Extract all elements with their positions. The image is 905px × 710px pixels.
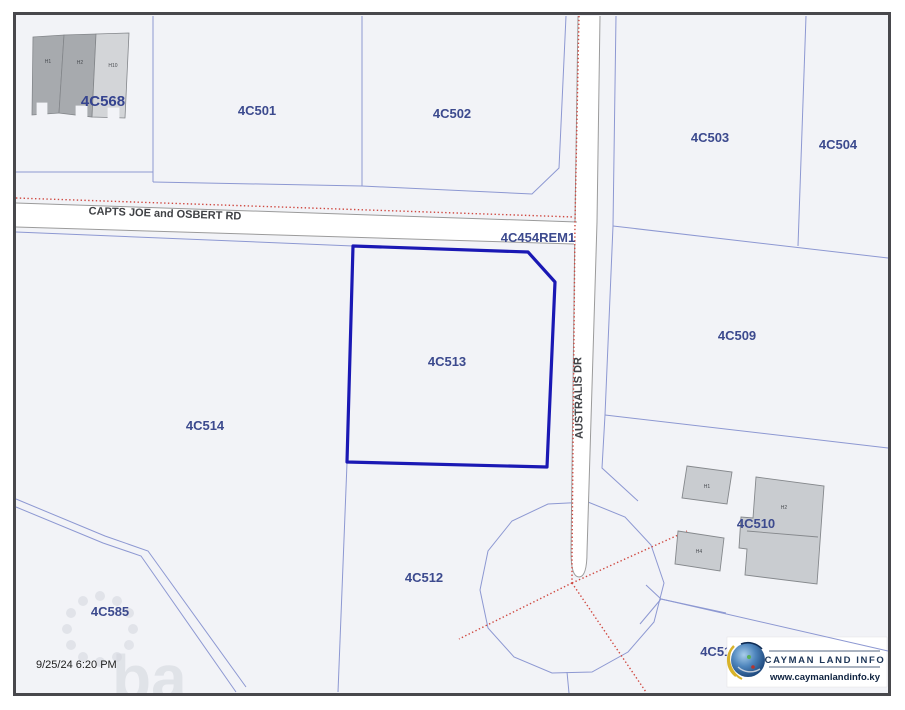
parcel-label-4c568[interactable]: 4C568	[81, 93, 125, 110]
building-label: H2	[77, 60, 84, 66]
parcel-label-4c503[interactable]: 4C503	[691, 130, 729, 145]
parcel-label-4c514[interactable]: 4C514	[186, 418, 225, 433]
parcel-label-4c513[interactable]: 4C513	[428, 354, 466, 369]
building-label: H2	[781, 505, 788, 511]
parcel-label-4c504[interactable]: 4C504	[819, 137, 858, 152]
parcel-label-4c454rem1[interactable]: 4C454REM1	[501, 230, 575, 245]
parcel-label-4c510[interactable]: 4C510	[737, 516, 775, 531]
parcel-label-4c509[interactable]: 4C509	[718, 328, 756, 343]
parcel-label-4c501[interactable]: 4C501	[238, 103, 276, 118]
map-canvas[interactable]: ba	[0, 0, 905, 710]
building-label: H1	[704, 484, 711, 490]
logo-title: CAYMAN LAND INFO	[765, 655, 886, 666]
parcel-label-4c512[interactable]: 4C512	[405, 570, 443, 585]
logo-url[interactable]: www.caymanlandinfo.ky	[769, 672, 881, 683]
parcel-label-4c585[interactable]: 4C585	[91, 604, 129, 619]
building-label: H1	[45, 59, 52, 65]
parcel-label-4c502[interactable]: 4C502	[433, 106, 471, 121]
building-label: H10	[108, 63, 117, 69]
road-label-australis-dr: AUSTRALIS DR	[572, 357, 585, 439]
building-label: H4	[696, 549, 703, 555]
map-viewer-page: ba	[0, 0, 905, 710]
watermark-text: ba	[112, 642, 187, 710]
timestamp: 9/25/24 6:20 PM	[36, 659, 117, 671]
